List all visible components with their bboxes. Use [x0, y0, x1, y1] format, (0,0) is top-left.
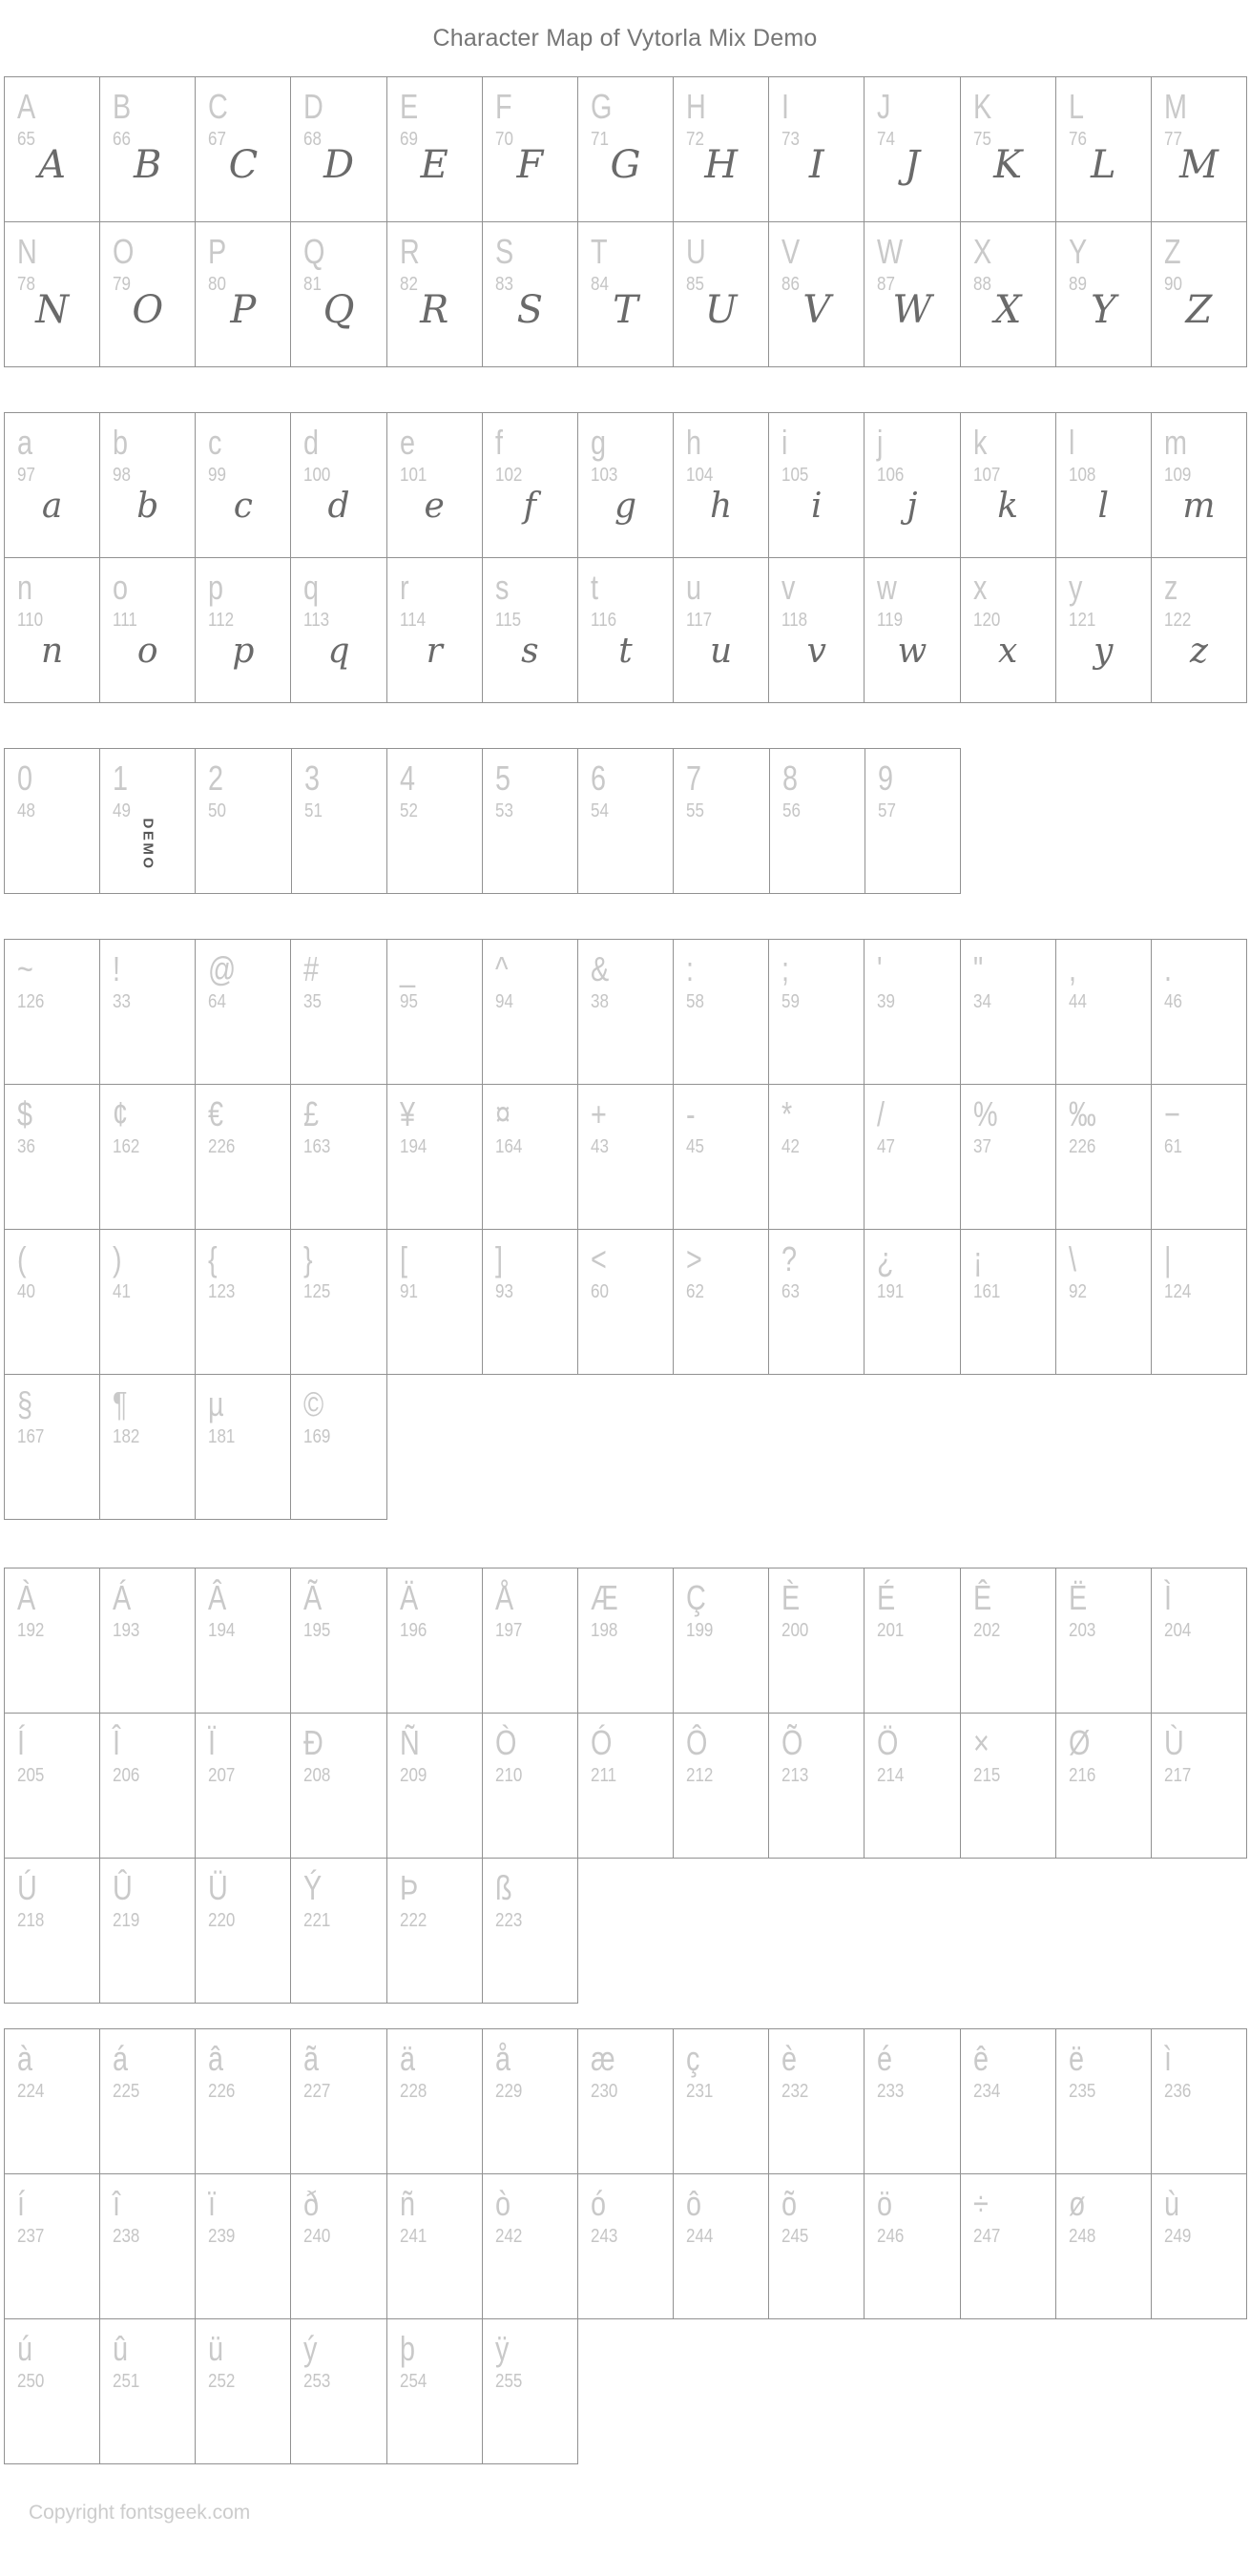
cell-code: 241 [400, 2227, 427, 2246]
cell-character: ß [495, 1871, 512, 1905]
cell-code: 199 [686, 1621, 713, 1640]
cell-character: - [686, 1097, 696, 1132]
cell-code: 46 [1164, 992, 1182, 1011]
cell-code: 244 [686, 2227, 713, 2246]
cell-character: Ë [1069, 1581, 1087, 1615]
cell-glyph: X [961, 291, 1055, 329]
cell-character: Ê [973, 1581, 991, 1615]
cell-code: 95 [400, 992, 418, 1011]
cell-character: á [113, 2042, 128, 2076]
cell-character: é [877, 2042, 892, 2076]
cell-character: Ö [877, 1726, 898, 1760]
char-cell: Ä196 [387, 1568, 483, 1714]
cell-character: ? [781, 1242, 797, 1277]
char-cell: T84T [578, 222, 674, 367]
char-cell: æ230 [578, 2029, 674, 2174]
cell-code: 203 [1069, 1621, 1095, 1640]
cell-code: 50 [208, 801, 226, 821]
cell-character: x [973, 571, 987, 605]
cell-character: ¶ [113, 1387, 127, 1422]
cell-code: 232 [781, 2082, 808, 2101]
cell-code: 58 [686, 992, 704, 1011]
char-cell: <60 [578, 1230, 674, 1375]
cell-code: 100 [303, 466, 330, 485]
cell-character: ¿ [877, 1242, 894, 1277]
cell-code: 237 [17, 2227, 44, 2246]
cell-code: 229 [495, 2082, 522, 2101]
cell-character: T [591, 235, 608, 269]
cell-character: ã [303, 2042, 319, 2076]
cell-character: o [113, 571, 128, 605]
cell-glyph: O [100, 291, 195, 329]
cell-character: Û [113, 1871, 133, 1905]
cell-code: 116 [591, 611, 616, 630]
char-cell: g103g [578, 413, 674, 558]
char-cell: í237 [5, 2174, 100, 2319]
cell-code: 238 [113, 2227, 139, 2246]
cell-glyph: A [5, 146, 99, 184]
char-cell: ú250 [5, 2319, 100, 2464]
char-cell: Í205 [5, 1714, 100, 1859]
cell-code: 192 [17, 1621, 44, 1640]
char-cell: §167 [5, 1375, 100, 1520]
char-cell: ë235 [1056, 2029, 1152, 2174]
char-cell: Ó211 [578, 1714, 674, 1859]
cell-character: Õ [781, 1726, 802, 1760]
char-cell: i105i [769, 413, 865, 558]
char-cell: ó243 [578, 2174, 674, 2319]
cell-character: Ä [400, 1581, 418, 1615]
cell-character: ‰ [1069, 1097, 1096, 1132]
cell-code: 169 [303, 1427, 330, 1446]
char-cell: k107k [961, 413, 1056, 558]
cell-code: 55 [686, 801, 704, 821]
cell-code: 120 [973, 611, 1000, 630]
cell-character: H [686, 90, 706, 124]
cell-code: 216 [1069, 1766, 1095, 1785]
cell-character: 6 [591, 761, 606, 796]
char-cell: q113q [291, 558, 386, 703]
char-cell: Ð208 [291, 1714, 386, 1859]
char-cell: Ò210 [483, 1714, 578, 1859]
char-cell: ð240 [291, 2174, 386, 2319]
cell-character: ) [113, 1242, 122, 1277]
cell-glyph: G [578, 146, 673, 184]
cell-character: X [973, 235, 991, 269]
cell-character: 3 [304, 761, 320, 796]
cell-character: J [877, 90, 890, 124]
char-cell: ü252 [196, 2319, 291, 2464]
cell-character: ^ [495, 952, 509, 987]
cell-code: 93 [495, 1282, 513, 1301]
cell-character: > [686, 1242, 702, 1277]
cell-code: 194 [400, 1137, 427, 1156]
cell-code: 217 [1164, 1766, 1191, 1785]
cell-character: % [973, 1097, 998, 1132]
cell-character: 9 [878, 761, 893, 796]
cell-code: 254 [400, 2372, 427, 2391]
cell-character: Ð [303, 1726, 323, 1760]
cell-code: 211 [591, 1766, 616, 1785]
char-cell: Ï207 [196, 1714, 291, 1859]
cell-code: 105 [781, 466, 808, 485]
cell-code: 167 [17, 1427, 44, 1446]
char-cell: ß223 [483, 1859, 578, 2004]
cell-character: Ô [686, 1726, 707, 1760]
cell-character: D [303, 90, 323, 124]
char-cell: $36 [5, 1085, 100, 1230]
cell-character: < [591, 1242, 607, 1277]
char-cell: r114r [387, 558, 483, 703]
char-cell: ñ241 [387, 2174, 483, 2319]
cell-character: ë [1069, 2042, 1084, 2076]
char-cell: É201 [865, 1568, 960, 1714]
char-cell: þ254 [387, 2319, 483, 2464]
cell-character: , [1069, 952, 1076, 987]
char-cell: ç231 [674, 2029, 769, 2174]
cell-code: 104 [686, 466, 713, 485]
cell-glyph: r [387, 634, 482, 669]
cell-character: Î [113, 1726, 120, 1760]
cell-code: 48 [17, 801, 35, 821]
char-cell: ^94 [483, 940, 578, 1085]
cell-glyph: t [578, 634, 673, 669]
cell-character: Z [1164, 235, 1181, 269]
char-cell: v118v [769, 558, 865, 703]
char-cell: L76L [1056, 77, 1152, 222]
char-cell: Z90Z [1152, 222, 1247, 367]
char-cell: Ô212 [674, 1714, 769, 1859]
cell-character: { [208, 1242, 218, 1277]
char-cell: R82R [387, 222, 483, 367]
char-cell: l108l [1056, 413, 1152, 558]
char-cell: Ù217 [1152, 1714, 1247, 1859]
char-cell: è232 [769, 2029, 865, 2174]
cell-glyph: M [1152, 146, 1246, 184]
cell-code: 221 [303, 1911, 330, 1930]
char-cell: o111o [100, 558, 196, 703]
char-cell: j106j [865, 413, 960, 558]
cell-code: 106 [877, 466, 904, 485]
cell-glyph: C [196, 146, 290, 184]
cell-character: d [303, 426, 319, 460]
cell-character: Ø [1069, 1726, 1090, 1760]
char-cell: á225 [100, 2029, 196, 2174]
cell-glyph: a [5, 489, 99, 524]
char-cell: Q81Q [291, 222, 386, 367]
char-cell: é233 [865, 2029, 960, 2174]
char-cell: Â194 [196, 1568, 291, 1714]
cell-code: 228 [400, 2082, 427, 2101]
cell-code: 246 [877, 2227, 904, 2246]
char-cell: #35 [291, 940, 386, 1085]
cell-code: 44 [1069, 992, 1087, 1011]
cell-character: â [208, 2042, 223, 2076]
cell-character: a [17, 426, 32, 460]
cell-character: * [781, 1097, 792, 1132]
char-cell: Ê202 [961, 1568, 1056, 1714]
cell-character: P [208, 235, 226, 269]
cell-code: 52 [400, 801, 418, 821]
cell-code: 102 [495, 466, 522, 485]
char-cell: Ã195 [291, 1568, 386, 1714]
cell-character: 5 [495, 761, 510, 796]
cell-code: 45 [686, 1137, 704, 1156]
cell-character: . [1164, 952, 1172, 987]
cell-character: B [113, 90, 131, 124]
cell-character: N [17, 235, 37, 269]
char-cell: J74J [865, 77, 960, 222]
cell-glyph: w [865, 634, 959, 669]
char-cell: ø248 [1056, 2174, 1152, 2319]
cell-code: 210 [495, 1766, 522, 1785]
char-cell: ö246 [865, 2174, 960, 2319]
char-cell: O79O [100, 222, 196, 367]
cell-character: y [1069, 571, 1082, 605]
cell-glyph: U [674, 291, 768, 329]
cell-character: 2 [208, 761, 223, 796]
cell-character: t [591, 571, 598, 605]
cell-code: 220 [208, 1911, 235, 1930]
cell-code: 161 [973, 1282, 1000, 1301]
cell-character: É [877, 1581, 895, 1615]
cell-glyph: v [769, 634, 864, 669]
char-cell: D68D [291, 77, 386, 222]
cell-character: £ [303, 1097, 319, 1132]
char-cell: U85U [674, 222, 769, 367]
char-cell: ã227 [291, 2029, 386, 2174]
cell-glyph: P [196, 291, 290, 329]
char-cell: Ë203 [1056, 1568, 1152, 1714]
cell-code: 115 [495, 611, 521, 630]
char-cell: .46 [1152, 940, 1247, 1085]
char-cell: û251 [100, 2319, 196, 2464]
cell-code: 60 [591, 1282, 609, 1301]
char-cell: ä228 [387, 2029, 483, 2174]
char-cell: Y89Y [1056, 222, 1152, 367]
cell-code: 121 [1069, 611, 1095, 630]
cell-glyph: Y [1056, 291, 1151, 329]
char-cell: Õ213 [769, 1714, 865, 1859]
cell-character: n [17, 571, 32, 605]
cell-code: 92 [1069, 1282, 1087, 1301]
cell-code: 235 [1069, 2082, 1095, 2101]
cell-character: Ã [303, 1581, 322, 1615]
cell-character: ò [495, 2187, 510, 2221]
char-cell: ,44 [1056, 940, 1152, 1085]
cell-glyph: Z [1152, 291, 1246, 329]
cell-code: 123 [208, 1282, 235, 1301]
cell-code: 163 [303, 1137, 330, 1156]
char-cell: -45 [674, 1085, 769, 1230]
cell-glyph: k [961, 489, 1055, 524]
cell-code: 109 [1164, 466, 1191, 485]
cell-character: u [686, 571, 701, 605]
cell-code: 40 [17, 1282, 35, 1301]
cell-code: 47 [877, 1137, 895, 1156]
char-cell: +43 [578, 1085, 674, 1230]
cell-character: w [877, 571, 897, 605]
char-cell: å229 [483, 2029, 578, 2174]
cell-code: 107 [973, 466, 1000, 485]
cell-code: 101 [400, 466, 427, 485]
cell-character: F [495, 90, 512, 124]
cell-code: 62 [686, 1282, 704, 1301]
cell-character: è [781, 2042, 797, 2076]
cell-character: í [17, 2187, 25, 2221]
cell-character: ç [686, 2042, 699, 2076]
cell-code: 251 [113, 2372, 139, 2391]
char-cell: À192 [5, 1568, 100, 1714]
char-cell: 856 [770, 749, 865, 894]
cell-code: 99 [208, 466, 226, 485]
cell-character: à [17, 2042, 32, 2076]
cell-glyph: B [100, 146, 195, 184]
cell-character: − [1164, 1097, 1180, 1132]
cell-glyph: K [961, 146, 1055, 184]
cell-code: 119 [877, 611, 903, 630]
cell-code: 249 [1164, 2227, 1191, 2246]
cell-code: 242 [495, 2227, 522, 2246]
cell-character: 7 [686, 761, 701, 796]
cell-code: 227 [303, 2082, 330, 2101]
char-cell: A65A [5, 77, 100, 222]
char-cell: /47 [865, 1085, 960, 1230]
cell-glyph: z [1152, 634, 1246, 669]
cell-glyph: f [483, 489, 577, 524]
cell-character: 1 [113, 761, 128, 796]
demo-watermark: DEMO [139, 819, 156, 871]
cell-glyph: e [387, 489, 482, 524]
cell-code: 103 [591, 466, 617, 485]
char-cell: &38 [578, 940, 674, 1085]
page-footer: Copyright fontsgeek.com [29, 2502, 250, 2524]
cell-character: å [495, 2042, 510, 2076]
char-cell: ì236 [1152, 2029, 1247, 2174]
cell-glyph: s [483, 634, 577, 669]
char-cell: Æ198 [578, 1568, 674, 1714]
cell-character: f [495, 426, 503, 460]
char-cell: õ245 [769, 2174, 865, 2319]
cell-character: ä [400, 2042, 415, 2076]
cell-character: ! [113, 952, 120, 987]
digits-grid: 048149DEMO250351452553654755856957 [4, 748, 961, 894]
char-cell: *42 [769, 1085, 865, 1230]
char-cell: ?63 [769, 1230, 865, 1375]
cell-code: 112 [208, 611, 234, 630]
cell-code: 195 [303, 1621, 330, 1640]
char-cell: Î206 [100, 1714, 196, 1859]
cell-character: | [1164, 1242, 1171, 1277]
char-cell: ò242 [483, 2174, 578, 2319]
cell-character: k [973, 426, 987, 460]
cell-character: Ù [1164, 1726, 1184, 1760]
cell-code: 250 [17, 2372, 44, 2391]
cell-glyph: g [578, 489, 673, 524]
cell-character: ÿ [495, 2332, 509, 2366]
cell-character: Å [495, 1581, 513, 1615]
cell-character: Â [208, 1581, 226, 1615]
char-cell: ×215 [961, 1714, 1056, 1859]
cell-glyph: i [769, 489, 864, 524]
cell-glyph: S [483, 291, 577, 329]
cell-character: p [208, 571, 223, 605]
cell-character: Ç [686, 1581, 706, 1615]
cell-code: 91 [400, 1282, 418, 1301]
cell-character: ; [781, 952, 789, 987]
char-cell: Ø216 [1056, 1714, 1152, 1859]
char-cell: p112p [196, 558, 291, 703]
char-cell: ÷247 [961, 2174, 1056, 2319]
cell-code: 51 [304, 801, 323, 821]
cell-glyph: W [865, 291, 959, 329]
cell-glyph: N [5, 291, 99, 329]
char-cell: Þ222 [387, 1859, 483, 2004]
char-cell: _95 [387, 940, 483, 1085]
char-cell: Á193 [100, 1568, 196, 1714]
cell-code: 37 [973, 1137, 991, 1156]
cell-character: ~ [17, 952, 33, 987]
cell-character: Þ [400, 1871, 418, 1905]
cell-code: 49 [113, 801, 131, 821]
cell-character: A [17, 90, 35, 124]
cell-glyph: I [769, 146, 864, 184]
cell-character: v [781, 571, 795, 605]
cell-character: [ [400, 1242, 407, 1277]
cell-character: Y [1069, 235, 1087, 269]
char-cell: C67C [196, 77, 291, 222]
char-cell: ;59 [769, 940, 865, 1085]
char-cell: Ñ209 [387, 1714, 483, 1859]
cell-code: 36 [17, 1137, 35, 1156]
char-cell: x120x [961, 558, 1056, 703]
cell-code: 201 [877, 1621, 904, 1640]
cell-code: 35 [303, 992, 322, 1011]
char-cell: @64 [196, 940, 291, 1085]
cell-code: 224 [17, 2082, 44, 2101]
cell-code: 253 [303, 2372, 330, 2391]
cell-code: 230 [591, 2082, 617, 2101]
cell-code: 226 [1069, 1137, 1095, 1156]
cell-glyph: o [100, 634, 195, 669]
char-cell: n110n [5, 558, 100, 703]
char-cell: f102f [483, 413, 578, 558]
cell-character: C [208, 90, 228, 124]
cell-character: Ò [495, 1726, 516, 1760]
cell-code: 197 [495, 1621, 522, 1640]
cell-code: 61 [1164, 1137, 1182, 1156]
char-cell: S83S [483, 222, 578, 367]
char-cell: ]93 [483, 1230, 578, 1375]
cell-character: & [591, 952, 609, 987]
cell-character: æ [591, 2042, 615, 2076]
cell-character: q [303, 571, 319, 605]
cell-code: 43 [591, 1137, 609, 1156]
cell-character: ¢ [113, 1097, 128, 1132]
char-cell: '39 [865, 940, 960, 1085]
cell-code: 54 [591, 801, 609, 821]
char-cell: à224 [5, 2029, 100, 2174]
cell-character: Ñ [400, 1726, 420, 1760]
cell-character: × [973, 1726, 990, 1760]
cell-character: V [781, 235, 800, 269]
char-cell: H72H [674, 77, 769, 222]
cell-code: 114 [400, 611, 426, 630]
char-cell: 149DEMO [100, 749, 196, 894]
char-cell: Û219 [100, 1859, 196, 2004]
cell-character: ' [877, 952, 883, 987]
cell-code: 110 [17, 611, 43, 630]
